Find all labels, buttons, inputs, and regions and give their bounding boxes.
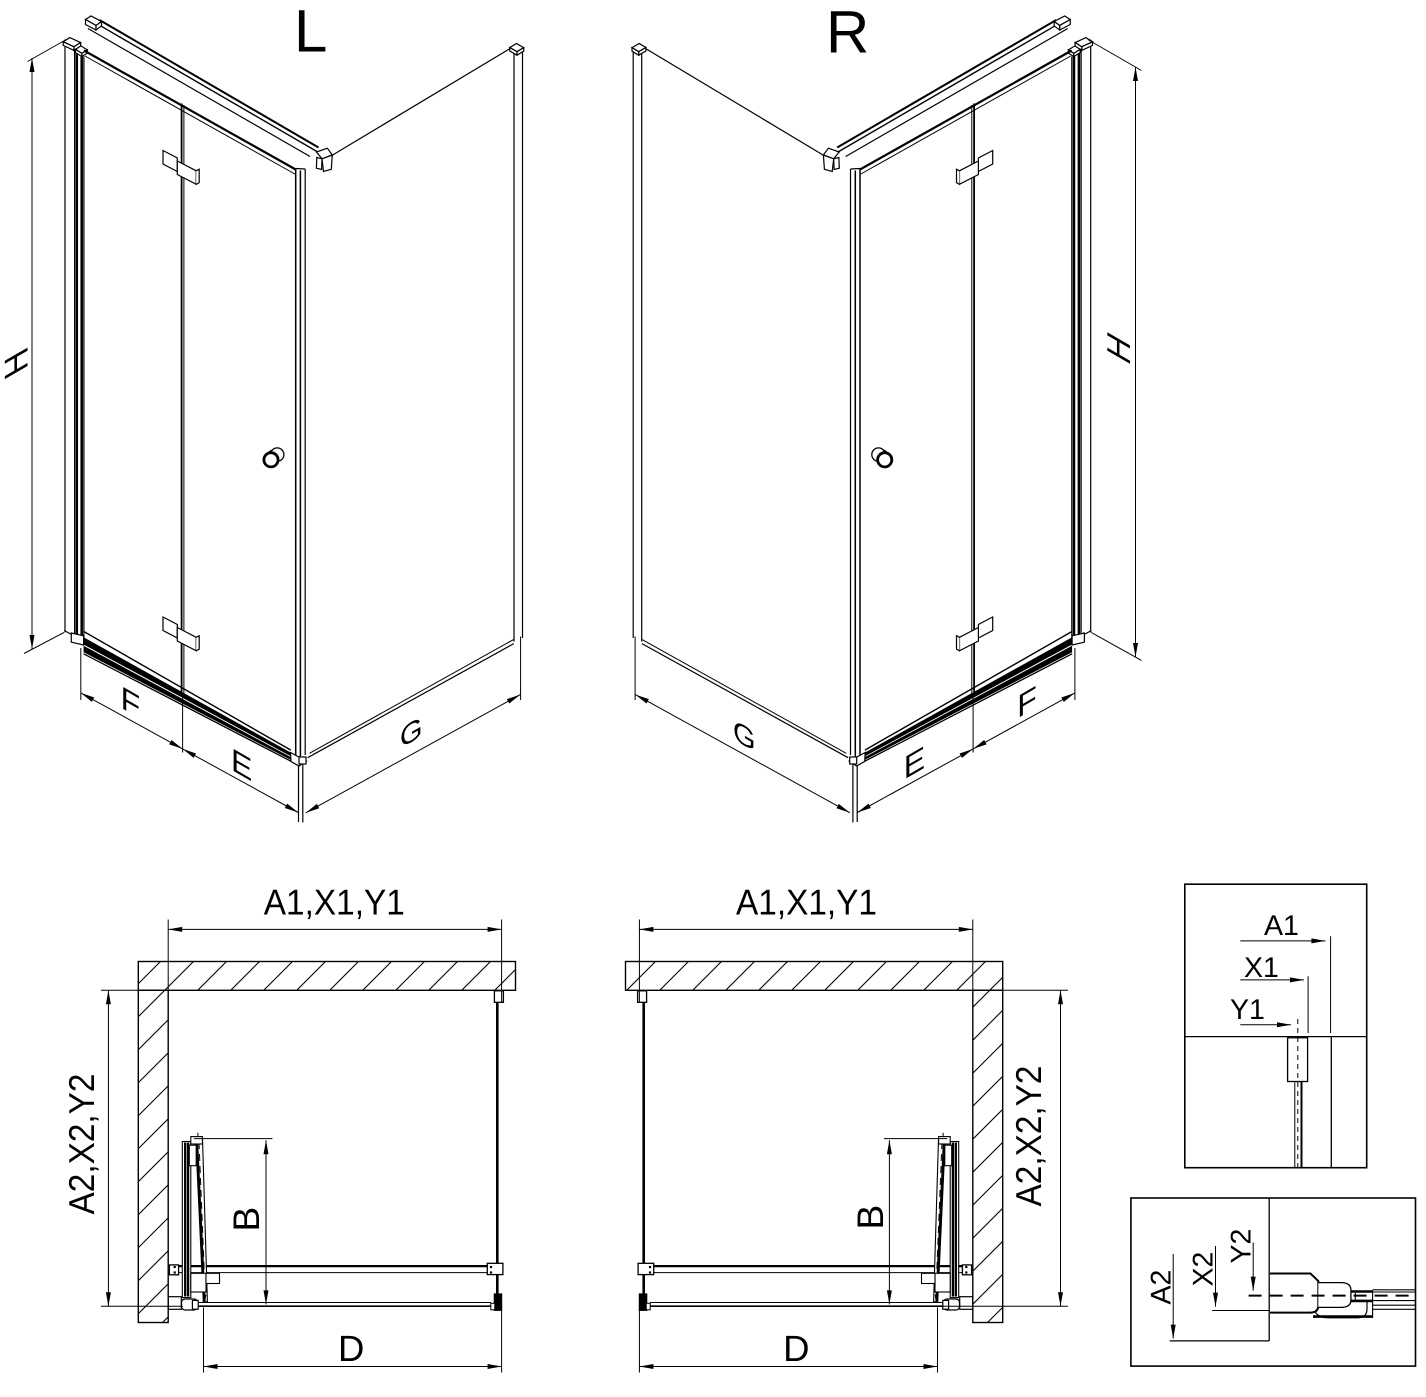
- svg-text:G: G: [400, 711, 423, 756]
- svg-text:L: L: [294, 0, 327, 65]
- svg-text:X1: X1: [1244, 952, 1279, 984]
- svg-text:E: E: [231, 741, 252, 789]
- svg-text:Y1: Y1: [1230, 994, 1265, 1026]
- svg-text:A2,X2,Y2: A2,X2,Y2: [61, 1074, 102, 1215]
- svg-text:E: E: [904, 738, 925, 786]
- svg-text:H: H: [0, 341, 35, 386]
- svg-text:R: R: [826, 0, 869, 66]
- svg-text:A1,X1,Y1: A1,X1,Y1: [264, 882, 405, 923]
- svg-text:B: B: [850, 1205, 891, 1230]
- svg-text:A1,X1,Y1: A1,X1,Y1: [736, 882, 877, 923]
- svg-text:D: D: [783, 1328, 809, 1369]
- svg-text:D: D: [338, 1328, 364, 1369]
- svg-text:Y2: Y2: [1226, 1229, 1258, 1264]
- svg-text:B: B: [226, 1207, 267, 1232]
- svg-text:H: H: [1100, 325, 1137, 370]
- svg-text:A2,X2,Y2: A2,X2,Y2: [1008, 1066, 1049, 1207]
- svg-text:X2: X2: [1188, 1252, 1220, 1287]
- svg-text:F: F: [1017, 678, 1037, 725]
- svg-text:G: G: [733, 714, 756, 759]
- svg-text:A1: A1: [1264, 910, 1299, 942]
- svg-text:F: F: [121, 679, 141, 726]
- svg-text:A2: A2: [1146, 1270, 1178, 1305]
